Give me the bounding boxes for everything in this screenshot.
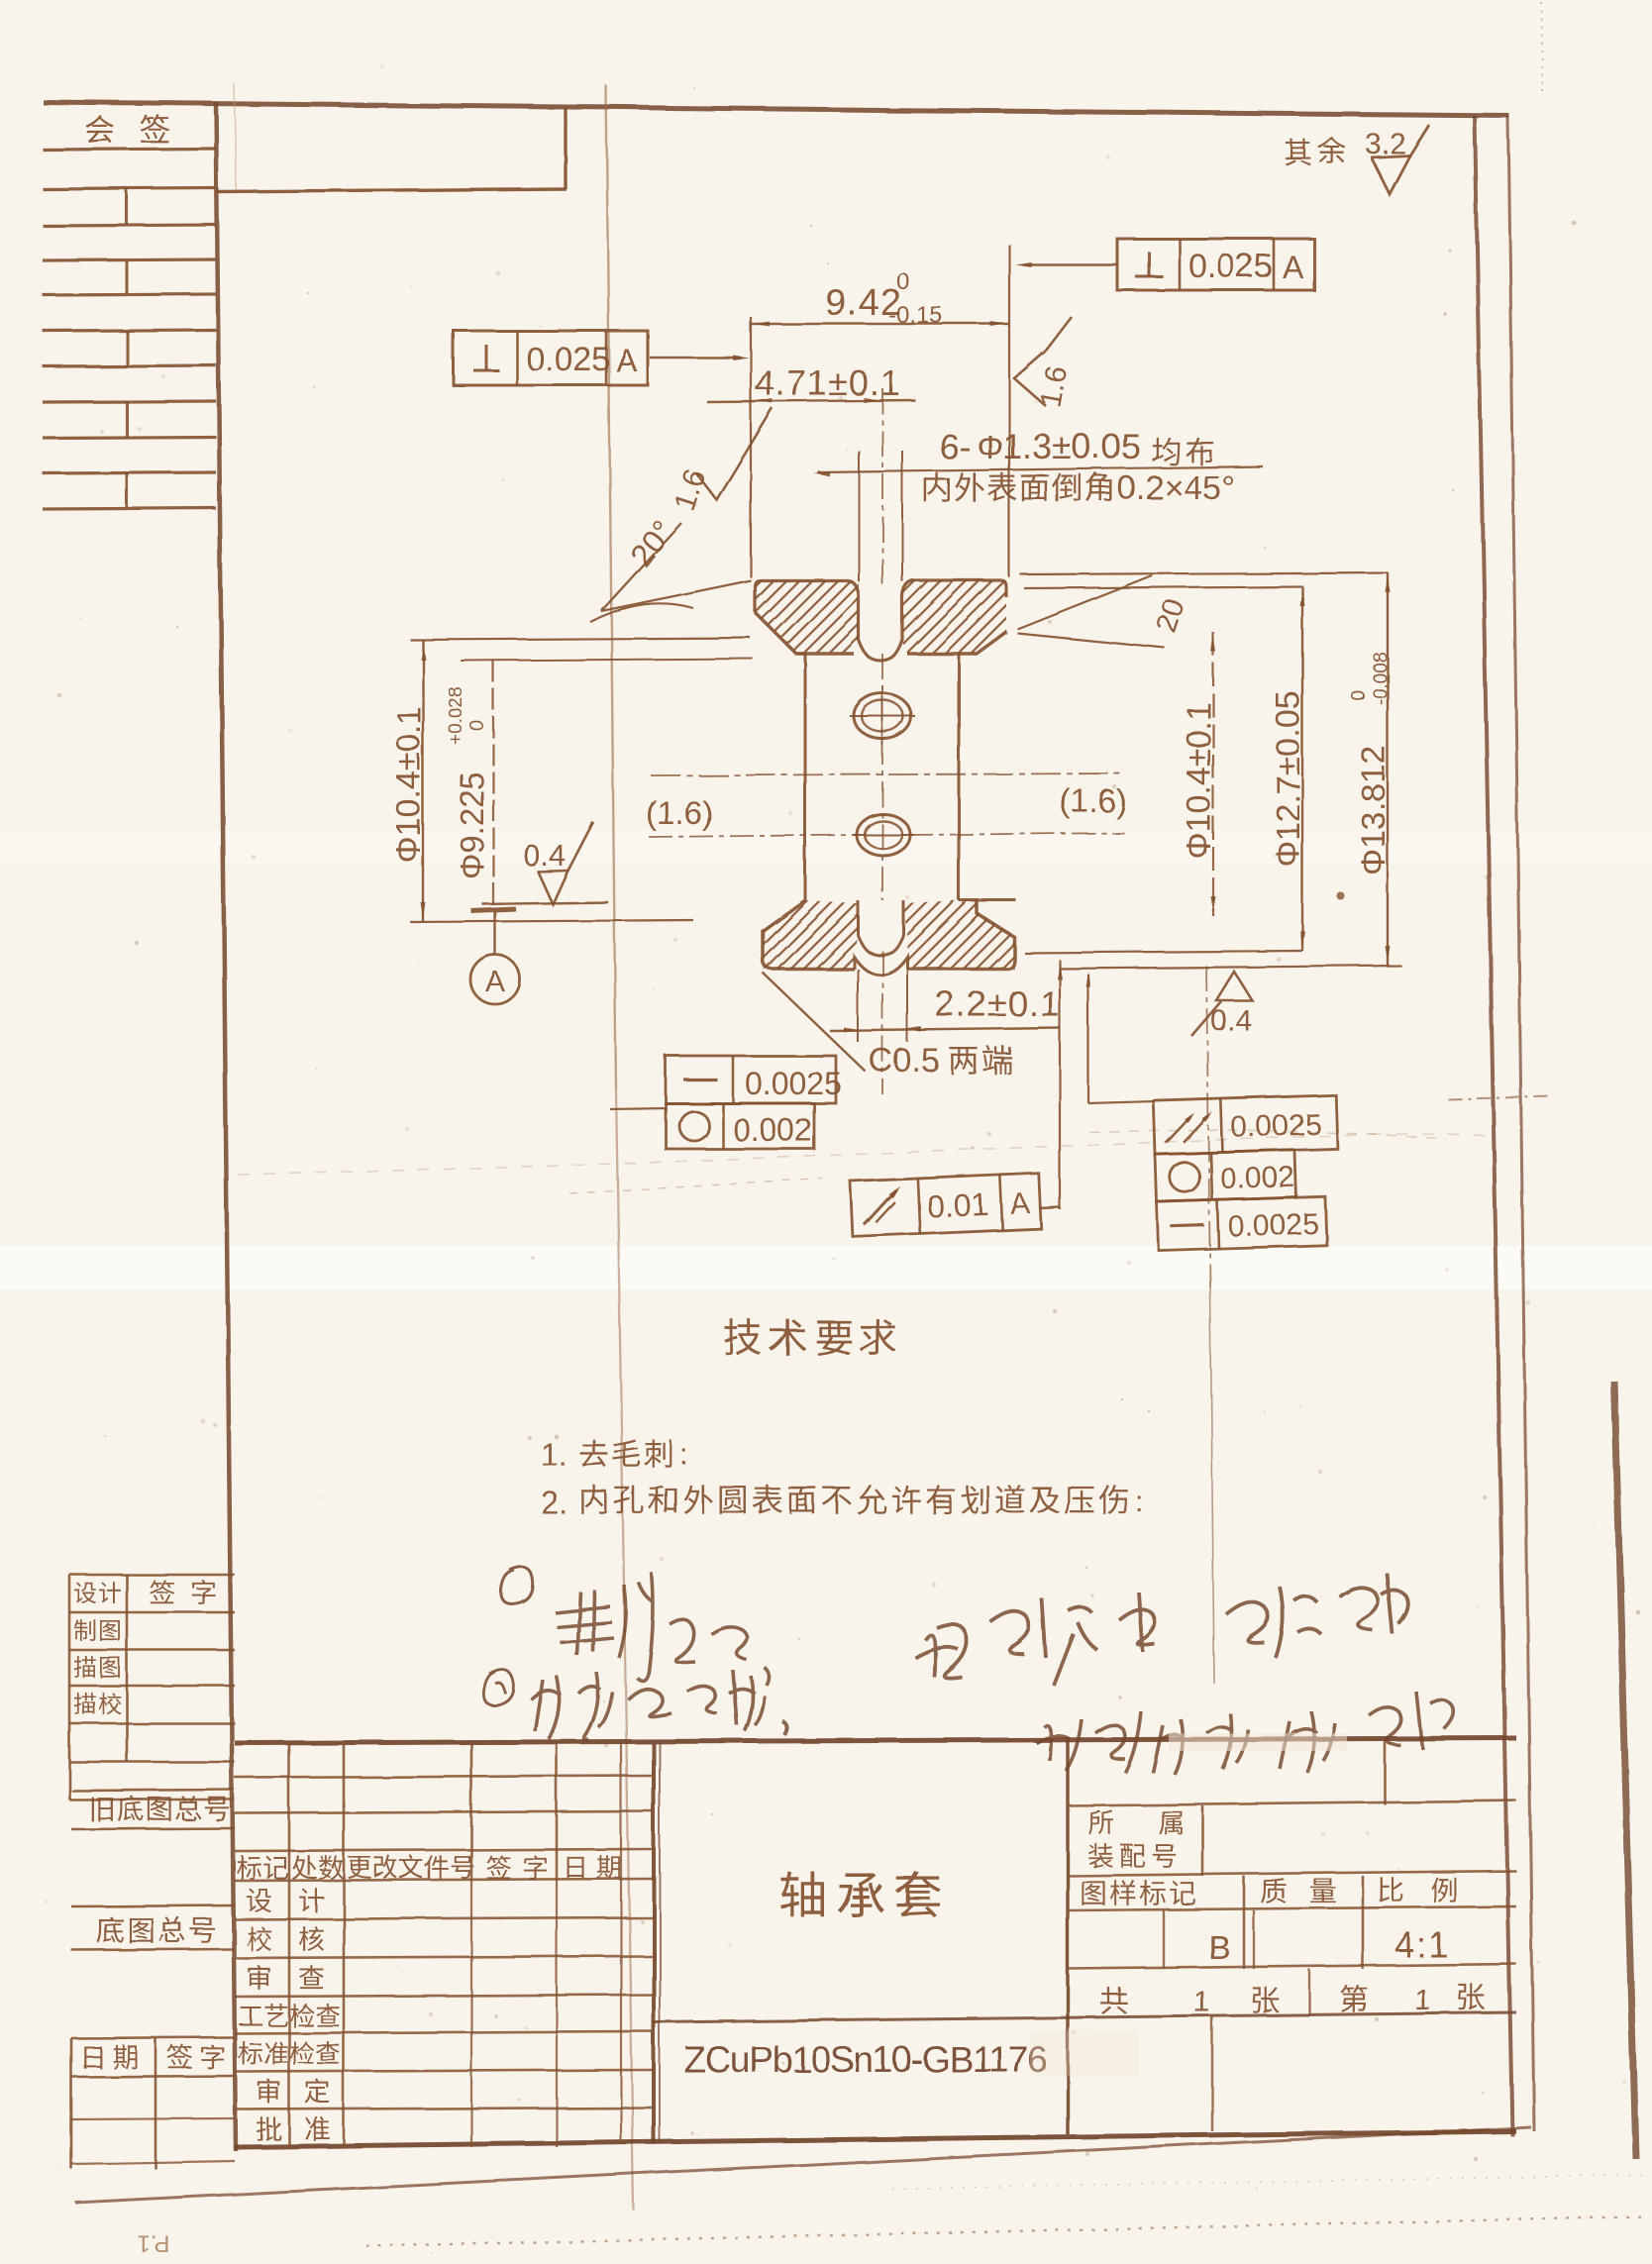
svg-text:-0.008: -0.008 bbox=[1371, 652, 1392, 705]
svg-text:0.4: 0.4 bbox=[523, 838, 566, 873]
svg-text::: : bbox=[1135, 1486, 1143, 1518]
svg-text:0.025: 0.025 bbox=[526, 341, 610, 378]
svg-text:0.2×45°: 0.2×45° bbox=[1117, 469, 1235, 507]
svg-text:P.1: P.1 bbox=[138, 2230, 170, 2257]
svg-text:B: B bbox=[1208, 1929, 1231, 1967]
svg-text:A: A bbox=[616, 343, 638, 378]
svg-text:0: 0 bbox=[1349, 690, 1370, 701]
svg-text:0.01: 0.01 bbox=[926, 1186, 989, 1225]
svg-text:0.4: 0.4 bbox=[1210, 1004, 1252, 1037]
svg-text:Φ9.225: Φ9.225 bbox=[454, 772, 490, 879]
svg-text:6-: 6- bbox=[939, 426, 971, 466]
svg-text:0: 0 bbox=[896, 268, 909, 295]
svg-text:1: 1 bbox=[1193, 1986, 1210, 2018]
svg-text:ZCuPb10Sn10-GB1176: ZCuPb10Sn10-GB1176 bbox=[683, 2039, 1046, 2080]
svg-text:Φ: Φ bbox=[977, 429, 1003, 466]
svg-text:A: A bbox=[1009, 1187, 1030, 1221]
svg-text:+0.028: +0.028 bbox=[446, 686, 466, 745]
svg-text:(1.6): (1.6) bbox=[646, 794, 713, 831]
svg-text:C0.5: C0.5 bbox=[869, 1042, 940, 1080]
svg-text:Φ12.7±0.05: Φ12.7±0.05 bbox=[1270, 691, 1307, 868]
svg-text:0.0025: 0.0025 bbox=[1227, 1207, 1319, 1243]
svg-text:1.3±0.05: 1.3±0.05 bbox=[1002, 426, 1141, 466]
svg-text:4.71±0.1: 4.71±0.1 bbox=[755, 362, 901, 403]
svg-text:0.002: 0.002 bbox=[733, 1112, 812, 1148]
svg-text:0.025: 0.025 bbox=[1188, 248, 1273, 285]
svg-text:Φ10.4±0.1: Φ10.4±0.1 bbox=[390, 706, 428, 864]
svg-text:A: A bbox=[485, 966, 505, 998]
svg-text:Φ13.812: Φ13.812 bbox=[1355, 746, 1393, 875]
svg-text:0.0025: 0.0025 bbox=[745, 1066, 842, 1101]
svg-text:0.002: 0.002 bbox=[1220, 1161, 1295, 1195]
svg-text:(1.6): (1.6) bbox=[1060, 782, 1127, 819]
svg-text:1: 1 bbox=[1414, 1984, 1431, 2016]
svg-text::: : bbox=[679, 1438, 687, 1471]
svg-text:2.: 2. bbox=[541, 1485, 568, 1520]
svg-text:0: 0 bbox=[467, 720, 488, 731]
svg-text:Φ10.4±0.1: Φ10.4±0.1 bbox=[1181, 702, 1218, 860]
svg-text:1.: 1. bbox=[541, 1437, 568, 1473]
svg-text:2.2±0.1: 2.2±0.1 bbox=[935, 983, 1061, 1024]
svg-text:4:1: 4:1 bbox=[1394, 1924, 1450, 1965]
svg-text:A: A bbox=[1283, 250, 1304, 285]
